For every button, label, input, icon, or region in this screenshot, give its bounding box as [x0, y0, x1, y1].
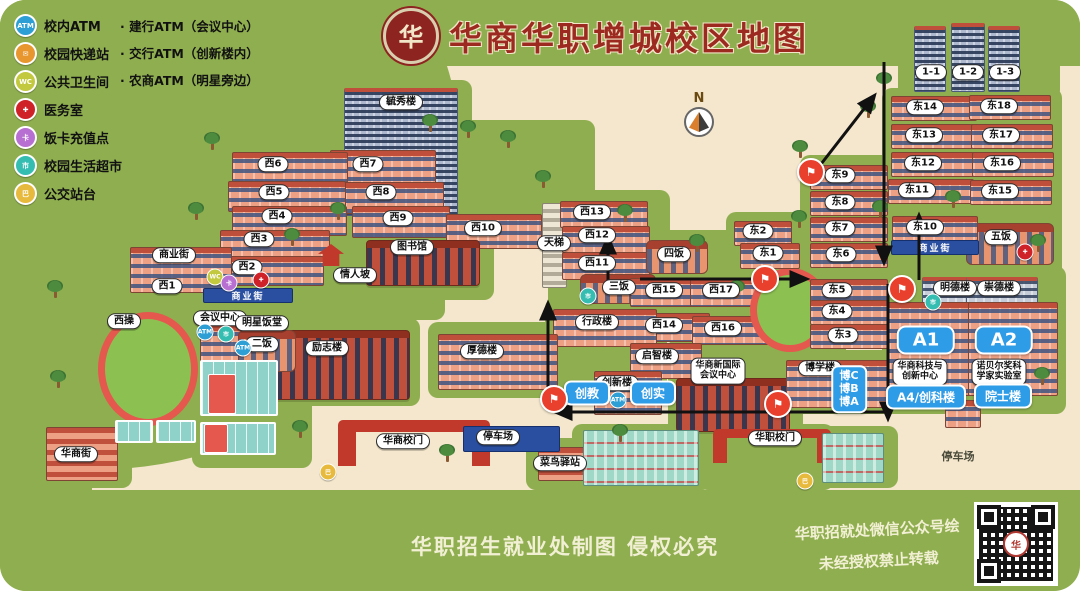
label-dong5: 东5 — [822, 282, 853, 298]
label-west-track: 西操 — [107, 313, 141, 329]
map-icon-shop: 市 — [580, 288, 597, 305]
label-a2-sub: 诺贝尔奖科学家实验室 — [971, 359, 1026, 386]
label-xi15: 西15 — [645, 282, 683, 298]
tree-icon — [292, 420, 308, 438]
label-dong12: 东12 — [904, 155, 942, 171]
map-icon-med: ✚ — [253, 272, 270, 289]
atm-note: 建行ATM（会议中心） — [120, 16, 259, 35]
label-cainiao: 菜鸟驿站 — [533, 455, 587, 471]
label-canteen-5: 五饭 — [984, 229, 1018, 245]
label-dong17: 东17 — [982, 127, 1020, 143]
label-xi3: 西3 — [244, 231, 275, 247]
tree-icon — [872, 200, 888, 218]
legend-label: 公共卫生间 — [44, 72, 109, 91]
label-dong7: 东7 — [825, 220, 856, 236]
atm-note: 交行ATM（创新楼内） — [120, 43, 259, 62]
tree-icon — [460, 120, 476, 138]
legend-label: 校园生活超市 — [44, 156, 122, 175]
label-lizhi: 励志楼 — [305, 340, 349, 356]
tree-icon — [860, 100, 876, 118]
label-parking-east: 停车场 — [942, 448, 975, 464]
label-xi16: 西16 — [704, 320, 742, 336]
tree-icon — [617, 204, 633, 222]
legend-item-card: 卡饭卡充值点 — [14, 126, 122, 149]
express-icon: ✉ — [14, 42, 37, 65]
map-icon-atm: ATM — [235, 340, 252, 357]
legend-label: 医务室 — [44, 100, 83, 119]
legend-label: 公交站台 — [44, 184, 96, 203]
building-courts-b — [115, 420, 153, 443]
bus-icon: 巴 — [14, 182, 37, 205]
med-icon: ✚ — [14, 98, 37, 121]
compass-icon: N — [682, 92, 716, 137]
qr-code: 华 — [974, 502, 1058, 586]
wc-icon: WC — [14, 70, 37, 93]
tree-icon — [188, 202, 204, 220]
compass-dial — [684, 107, 714, 137]
legend-item-wc: WC公共卫生间 — [14, 70, 122, 93]
legend-label: 饭卡充值点 — [44, 128, 109, 147]
label-dong2: 东2 — [743, 223, 774, 239]
tree-icon — [439, 444, 455, 462]
map-icon-atm: ATM — [197, 324, 214, 341]
school-seal-icon: 华 — [383, 8, 439, 64]
tree-icon — [422, 114, 438, 132]
map-icon-bus: 巴 — [320, 464, 337, 481]
legend-label: 校内ATM — [44, 16, 101, 35]
label-xi8: 西8 — [366, 184, 397, 200]
card-icon: 卡 — [14, 126, 37, 149]
shop-icon: 市 — [14, 154, 37, 177]
label-xi12: 西12 — [578, 227, 616, 243]
map-icon-shop: 市 — [218, 326, 235, 343]
tree-icon — [284, 228, 300, 246]
label-tower-1-1: 1-1 — [915, 64, 947, 80]
atm-note: 农商ATM（明星旁边） — [120, 70, 259, 89]
label-admin: 行政楼 — [575, 314, 619, 330]
page-title: 华 华商华职增城校区地图 — [383, 8, 809, 64]
building-houde — [438, 334, 558, 390]
map-icon-bus: 巴 — [797, 473, 814, 490]
tree-icon — [500, 130, 516, 148]
legend-item-shop: 市校园生活超市 — [14, 154, 122, 177]
label-sky-ladder: 天梯 — [537, 235, 571, 251]
atm-notes: 建行ATM（会议中心）交行ATM（创新楼内）农商ATM（明星旁边） — [120, 16, 259, 97]
label-dong6: 东6 — [826, 246, 857, 262]
label-huashang-gate: 华商校门 — [376, 433, 430, 449]
label-yuanshi: 院士楼 — [974, 384, 1032, 409]
building-west-track — [98, 312, 198, 426]
tree-icon — [945, 190, 961, 208]
label-mingde: 明德楼 — [933, 280, 977, 296]
building-tower-1-1 — [914, 26, 946, 92]
label-dong14: 东14 — [906, 99, 944, 115]
map-icon-shop: 市 — [925, 294, 942, 311]
map-canvas: 毓秀楼西7西8西9西6西5西4西3西2西1商业街商业街西10图书馆情人坡天梯西1… — [0, 0, 1080, 591]
legend-item-express: ✉校园快递站 — [14, 42, 122, 65]
label-xi9: 西9 — [383, 210, 414, 226]
copyright-text: 华职招就处微信公众号绘 未经授权禁止转载 — [794, 515, 962, 576]
label-xi13: 西13 — [573, 204, 611, 220]
campus-map-page: 毓秀楼西7西8西9西6西5西4西3西2西1商业街商业街西10图书馆情人坡天梯西1… — [0, 0, 1080, 591]
label-dong1: 东1 — [753, 245, 784, 261]
building-xi3 — [220, 230, 330, 259]
label-dong10: 东10 — [906, 219, 944, 235]
label-chuangshi: 创实 — [630, 381, 676, 406]
label-dong8: 东8 — [825, 194, 856, 210]
tree-icon — [612, 424, 628, 442]
label-dong9: 东9 — [825, 167, 856, 183]
label-xi7: 西7 — [353, 156, 384, 172]
label-tower-1-2: 1-2 — [952, 64, 984, 80]
label-dong18: 东18 — [980, 98, 1018, 114]
legend: ATM校内ATM✉校园快递站WC公共卫生间✚医务室卡饭卡充值点市校园生活超市巴公… — [14, 14, 122, 210]
label-xi5: 西5 — [259, 184, 290, 200]
tree-icon — [50, 370, 66, 388]
flag-marker-icon: ⚑ — [540, 385, 568, 413]
flag-marker-icon: ⚑ — [764, 390, 792, 418]
label-houde: 厚德楼 — [460, 343, 504, 359]
label-huazhi-gate: 华职校门 — [748, 430, 802, 446]
label-dong15: 东15 — [981, 183, 1019, 199]
flag-marker-icon: ⚑ — [797, 158, 825, 186]
label-bo-c-b-a: 博C博B博A — [831, 365, 867, 413]
label-a1: A1 — [897, 326, 955, 355]
tree-icon — [330, 202, 346, 220]
building-court-red-a — [208, 374, 236, 414]
legend-label: 校园快递站 — [44, 44, 109, 63]
label-chuangjiao: 创教 — [564, 381, 610, 406]
label-dong4: 东4 — [822, 303, 853, 319]
label-huashang-street: 华商街 — [54, 446, 98, 462]
tree-icon — [535, 170, 551, 188]
label-xi11: 西11 — [578, 255, 616, 271]
label-a1-sub: 华商科技与创新中心 — [892, 359, 947, 386]
building-biz-street-east-band: 商业街 — [891, 240, 979, 255]
legend-item-med: ✚医务室 — [14, 98, 122, 121]
label-chongde: 崇德楼 — [977, 280, 1021, 296]
map-icon-med: ✚ — [1017, 244, 1034, 261]
map-title-text: 华商华职增城校区地图 — [449, 12, 809, 60]
label-xi1: 西1 — [152, 278, 183, 294]
flag-marker-icon: ⚑ — [751, 265, 779, 293]
tree-icon — [791, 210, 807, 228]
label-a2: A2 — [975, 326, 1033, 355]
label-dong13: 东13 — [905, 127, 943, 143]
building-tower-1-3 — [988, 26, 1020, 92]
building-courts-c — [156, 420, 196, 443]
flag-marker-icon: ⚑ — [888, 275, 916, 303]
building-biz-street-west-band: 商业街 — [203, 288, 293, 303]
tree-icon — [689, 234, 705, 252]
label-lovers-slope: 情人坡 — [333, 267, 377, 283]
building-court-red-d — [204, 424, 228, 453]
compass-north-label: N — [682, 92, 716, 105]
qr-center-seal-icon: 华 — [1003, 531, 1029, 557]
label-intl-conf-center: 华商新国际会议中心 — [690, 358, 745, 385]
tree-icon — [204, 132, 220, 150]
map-icon-card: 卡 — [221, 275, 238, 292]
label-xi10: 西10 — [464, 220, 502, 236]
label-xi14: 西14 — [645, 317, 683, 333]
label-library: 图书馆 — [390, 239, 434, 255]
label-canteen-3: 三饭 — [602, 279, 636, 295]
label-yuxiu: 毓秀楼 — [379, 94, 423, 110]
label-dong3: 东3 — [828, 327, 859, 343]
tree-icon — [792, 140, 808, 158]
label-star-canteen: 明星饭堂 — [235, 315, 289, 331]
label-xi6: 西6 — [258, 156, 289, 172]
label-qizhi: 启智楼 — [635, 348, 679, 364]
label-xi17: 西17 — [702, 282, 740, 298]
tree-icon — [47, 280, 63, 298]
building-greenhouse-2 — [822, 433, 884, 483]
label-biz-street-west: 商业街 — [152, 247, 196, 263]
label-a4-chuangke: A4/创科楼 — [886, 385, 966, 410]
tree-icon — [1034, 367, 1050, 385]
tree-icon — [876, 72, 892, 90]
label-xi4: 西4 — [262, 208, 293, 224]
building-tower-1-2 — [951, 23, 985, 92]
map-icon-atm: ATM — [610, 392, 627, 409]
label-canteen-4: 四饭 — [657, 246, 691, 262]
building-xi6 — [232, 152, 348, 183]
label-dong16: 东16 — [983, 155, 1021, 171]
credit-text: 华职招生就业处制图 侵权必究 — [411, 531, 719, 561]
label-tower-1-3: 1-3 — [989, 64, 1021, 80]
building-greenhouse-1 — [583, 430, 699, 486]
legend-item-atm: ATM校内ATM — [14, 14, 122, 37]
legend-item-bus: 巴公交站台 — [14, 182, 122, 205]
label-dong11: 东11 — [898, 182, 936, 198]
label-parking-west: 停车场 — [476, 429, 520, 445]
atm-icon: ATM — [14, 14, 37, 37]
